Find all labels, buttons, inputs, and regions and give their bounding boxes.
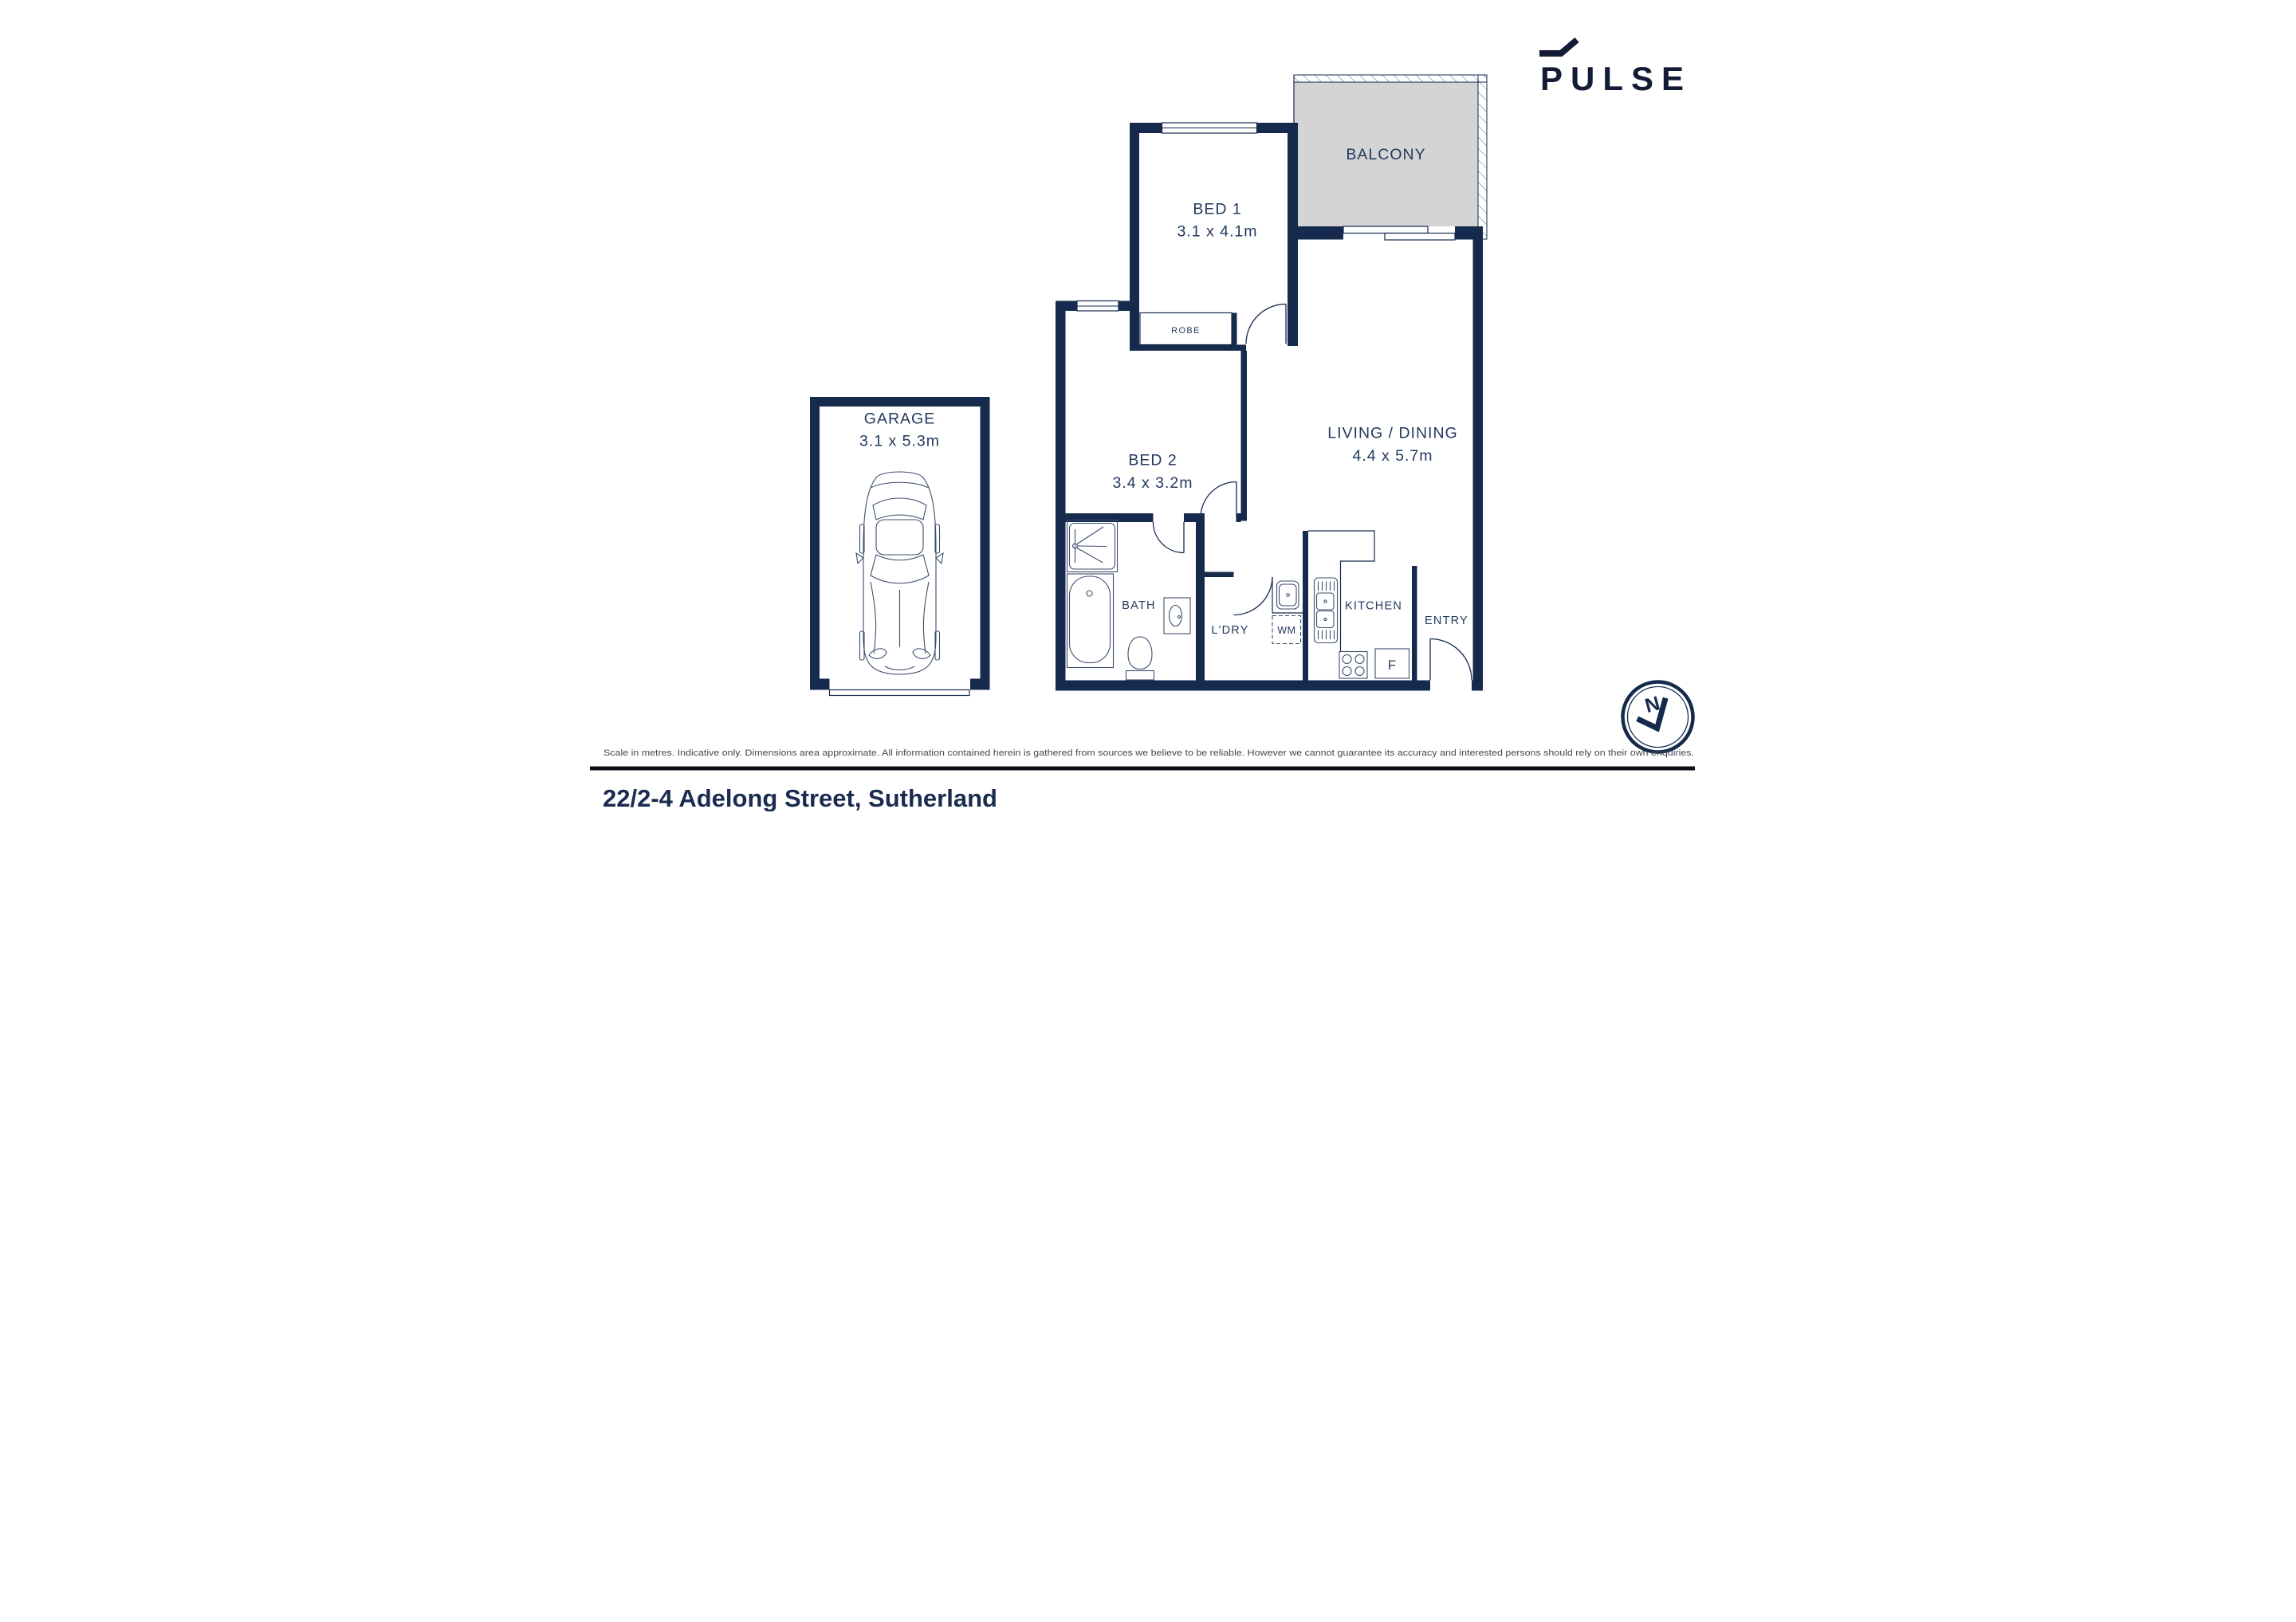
balcony-sliding-door xyxy=(1343,226,1455,240)
bathtub-icon xyxy=(1067,574,1114,668)
balcony-hatch-wall-right xyxy=(1478,75,1487,239)
footer: Scale in metres. Indicative only. Dimens… xyxy=(590,748,1695,811)
toilet-icon xyxy=(1126,637,1154,680)
pulse-logo-text: PULSE xyxy=(1540,60,1692,97)
balcony-hatch-wall-top xyxy=(1294,75,1487,82)
garage-door xyxy=(830,690,970,696)
balcony-label: BALCONY xyxy=(1346,146,1425,163)
garage-dims: 3.1 x 5.3m xyxy=(859,433,940,450)
entry-label: ENTRY xyxy=(1425,615,1468,627)
laundry-label: L'DRY xyxy=(1211,624,1248,637)
laundry: WM L'DRY xyxy=(1211,577,1303,644)
bed1-label: BED 1 xyxy=(1193,201,1241,218)
bed2-dims: 3.4 x 3.2m xyxy=(1112,474,1193,492)
divider-rule xyxy=(590,767,1695,771)
bath-label: BATH xyxy=(1122,599,1155,612)
floor-plan-svg: PULSE BALCONY xyxy=(574,0,1722,811)
kitchen-sink-icon xyxy=(1315,578,1338,643)
wm-label: WM xyxy=(1277,625,1295,636)
living-label: LIVING / DINING xyxy=(1327,425,1457,442)
disclaimer-text: Scale in metres. Indicative only. Dimens… xyxy=(603,748,1694,758)
shower-icon xyxy=(1067,520,1118,572)
bed1-dims: 3.1 x 4.1m xyxy=(1177,223,1257,241)
room-balcony: BALCONY xyxy=(1294,75,1487,239)
bed1-window xyxy=(1162,123,1257,133)
kitchen: F KITCHEN xyxy=(1308,531,1409,678)
pulse-logo: PULSE xyxy=(1539,40,1692,97)
living-dims: 4.4 x 5.7m xyxy=(1352,447,1433,465)
pulse-logo-tick-icon xyxy=(1539,40,1577,53)
vanity-sink-icon xyxy=(1164,598,1190,634)
car-topview-icon xyxy=(856,472,943,674)
bed2-door xyxy=(1201,482,1236,518)
robe-label: ROBE xyxy=(1171,326,1201,336)
entry-door xyxy=(1430,639,1472,681)
bed1-door xyxy=(1246,304,1286,344)
bathroom: BATH xyxy=(1067,520,1191,681)
fridge-label: F xyxy=(1388,658,1396,673)
stove-icon xyxy=(1339,652,1367,679)
bed2-window xyxy=(1077,301,1119,312)
address-title: 22/2-4 Adelong Street, Sutherland xyxy=(603,784,997,811)
north-compass-icon: N xyxy=(1615,674,1701,760)
laundry-door xyxy=(1234,577,1273,615)
laundry-tub-icon xyxy=(1277,581,1299,609)
floor-plan-page: PULSE BALCONY xyxy=(574,0,1722,811)
kitchen-label: KITCHEN xyxy=(1345,600,1402,613)
garage-label: GARAGE xyxy=(864,410,935,428)
bath-door xyxy=(1154,522,1185,553)
bed2-label: BED 2 xyxy=(1128,452,1177,469)
fridge-box: F xyxy=(1375,649,1409,678)
robe: ROBE xyxy=(1140,313,1232,345)
garage: GARAGE 3.1 x 5.3m xyxy=(810,397,990,696)
